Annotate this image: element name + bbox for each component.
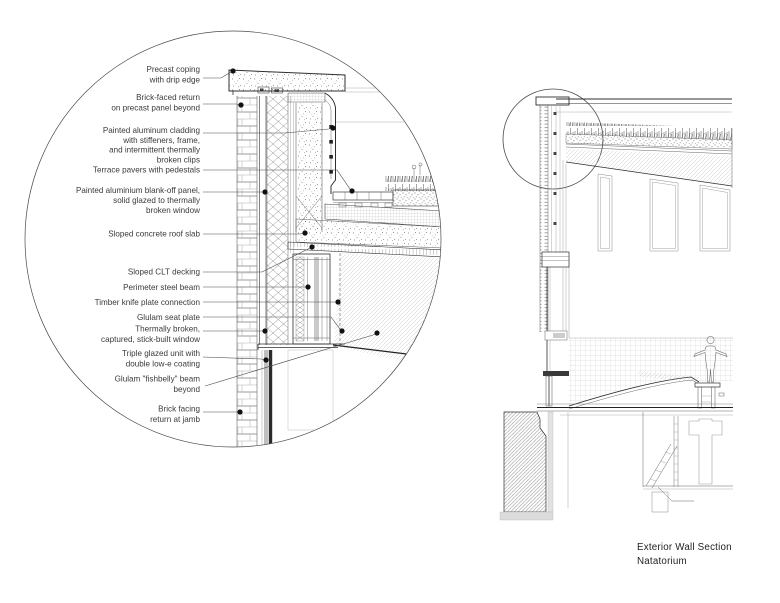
annotation-label-line: broken clips xyxy=(157,155,200,164)
foundation-wall xyxy=(500,412,553,520)
air-cavity-lines xyxy=(260,96,267,345)
leader-dot xyxy=(237,409,242,414)
annotation-label-line: with drip edge xyxy=(149,76,201,85)
pool-substructure xyxy=(568,412,733,512)
leader-dot xyxy=(262,328,267,333)
leader-dot xyxy=(302,230,307,235)
leader-dot xyxy=(339,328,344,333)
annotation-label-line: Terrace pavers with pedestals xyxy=(93,166,200,175)
annotation-label-line: on precast panel beyond xyxy=(111,104,200,113)
section-exterior-wall xyxy=(540,105,569,338)
leader-dot xyxy=(309,244,314,249)
insulation-layer xyxy=(267,96,288,345)
green-roof-planting xyxy=(385,163,443,206)
concrete-backup-panel xyxy=(296,103,322,232)
annotation-label-line: Triple glazed unit with xyxy=(122,349,200,358)
caption-line-2: Natatorium xyxy=(637,556,687,567)
annotation-label-line: Glulam seat plate xyxy=(137,313,200,322)
aluminum-cladding xyxy=(325,93,336,194)
caption-line-1: Exterior Wall Section xyxy=(637,542,732,553)
annotation-label-line: Precast coping xyxy=(146,65,200,74)
triple-glazed-window xyxy=(262,350,333,448)
annotation-label-line: Sloped CLT decking xyxy=(128,268,200,277)
architectural-sheet: Precast copingwith drip edgeBrick-faced … xyxy=(0,0,780,603)
section-parapet-coping xyxy=(536,97,569,105)
leader-dot xyxy=(230,68,235,73)
leader-dot xyxy=(349,188,354,193)
window-head-assembly xyxy=(293,254,330,344)
leader-line xyxy=(203,104,241,105)
annotation-label-line: Sloped concrete roof slab xyxy=(108,230,200,239)
reference-lines xyxy=(336,88,424,122)
leader-dot xyxy=(335,299,340,304)
annotation-label-line: return at jamb xyxy=(150,415,200,424)
leader-dot xyxy=(305,284,310,289)
annotation-label-line: Glulam "fishbelly" beam xyxy=(115,375,201,384)
annotation-label-line: broken window xyxy=(146,206,200,215)
section-windows-beyond xyxy=(598,174,730,251)
annotation-label-line: double low-e coating xyxy=(126,360,200,369)
leader-dot xyxy=(262,189,267,194)
precast-coping xyxy=(229,70,345,95)
building-section xyxy=(500,89,733,520)
annotation-label-line: Brick-faced return xyxy=(136,93,200,102)
wall-section-drawing: Precast copingwith drip edgeBrick-faced … xyxy=(0,0,780,603)
annotation-label-line: Thermally broken, xyxy=(135,325,200,334)
glulam-beam-hatch xyxy=(333,253,450,372)
leader-dot xyxy=(263,357,268,362)
section-green-roof xyxy=(556,99,732,188)
annotation-label-line: Timber knife plate connection xyxy=(95,298,200,307)
leader-dot xyxy=(238,102,243,107)
annotation-label-line: and intermittent thermally xyxy=(109,146,201,155)
leader-dot xyxy=(374,330,379,335)
sheathing-lines xyxy=(291,96,294,253)
section-tiled-wall xyxy=(569,338,733,412)
annotation-label-line: solid glazed to thermally xyxy=(113,196,201,205)
drawing-caption: Exterior Wall Section Natatorium xyxy=(637,542,732,567)
annotation-label-line: Brick facing xyxy=(158,405,200,414)
annotation-label-line: captured, stick-built window xyxy=(101,335,200,344)
vent-grille-band xyxy=(288,93,325,102)
annotation-label-line: beyond xyxy=(173,385,200,394)
annotation-label-line: Painted aluminium blank-off panel, xyxy=(76,186,200,195)
annotation-label-line: with stiffeners, frame, xyxy=(122,136,200,145)
leader-dot xyxy=(330,125,335,130)
annotation-label-line: Perimeter steel beam xyxy=(123,283,200,292)
detail-callout-circle-view xyxy=(25,31,450,448)
annotation-label-line: Painted aluminum cladding xyxy=(103,126,200,135)
cross-column xyxy=(689,419,722,484)
